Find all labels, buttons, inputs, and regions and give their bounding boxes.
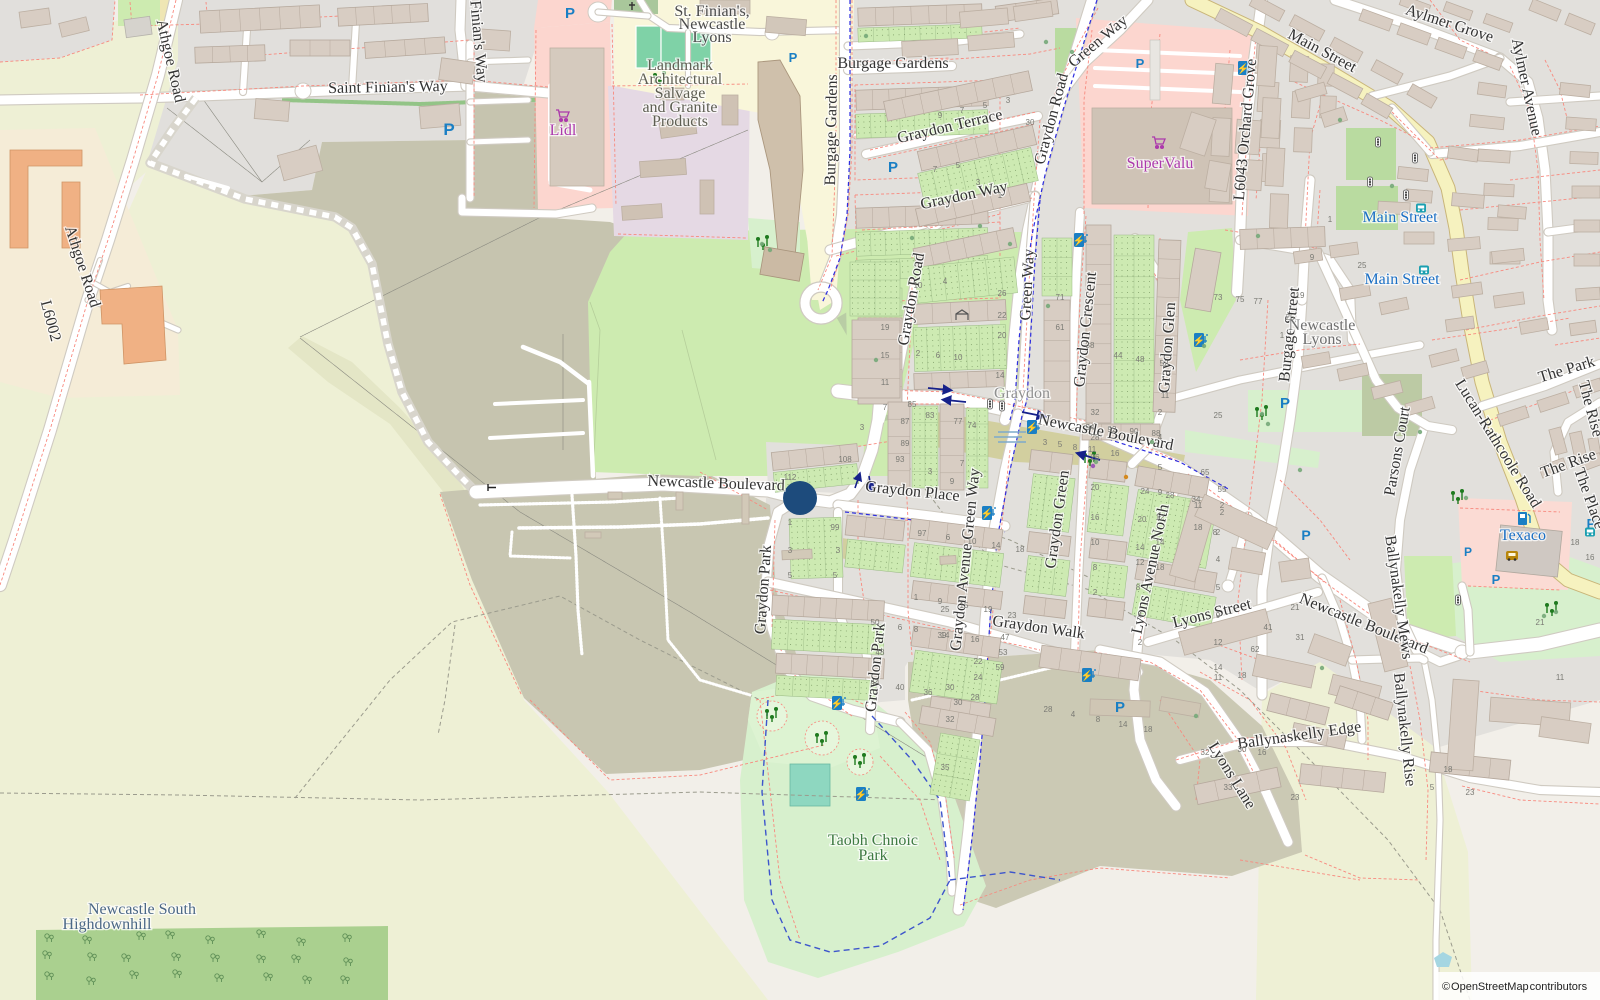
svg-text:2: 2 bbox=[916, 349, 921, 358]
svg-text:14: 14 bbox=[1136, 543, 1145, 552]
svg-text:9: 9 bbox=[1216, 611, 1221, 620]
svg-text:6: 6 bbox=[898, 623, 903, 632]
svg-text:P: P bbox=[443, 120, 454, 139]
svg-text:7: 7 bbox=[960, 106, 965, 115]
svg-text:18: 18 bbox=[1444, 765, 1453, 774]
svg-text:Highdownhill: Highdownhill bbox=[63, 916, 152, 933]
svg-text:18: 18 bbox=[1194, 523, 1203, 532]
svg-text:5: 5 bbox=[833, 571, 838, 580]
svg-text:25: 25 bbox=[1286, 313, 1295, 322]
svg-text:11: 11 bbox=[1161, 391, 1170, 400]
svg-text:52: 52 bbox=[1160, 359, 1169, 368]
svg-text:83: 83 bbox=[926, 411, 935, 420]
svg-text:28: 28 bbox=[1166, 491, 1175, 500]
svg-text:97: 97 bbox=[918, 529, 927, 538]
svg-text:18: 18 bbox=[1156, 563, 1165, 572]
svg-text:6: 6 bbox=[936, 351, 941, 360]
svg-text:20: 20 bbox=[998, 331, 1007, 340]
svg-text:25: 25 bbox=[1214, 411, 1223, 420]
svg-text:36: 36 bbox=[924, 688, 933, 697]
svg-text:19: 19 bbox=[1296, 291, 1305, 300]
svg-text:35: 35 bbox=[941, 763, 950, 772]
svg-text:7: 7 bbox=[960, 459, 965, 468]
svg-text:4: 4 bbox=[1071, 710, 1076, 719]
svg-text:Graydon: Graydon bbox=[994, 385, 1050, 402]
svg-text:18: 18 bbox=[1016, 545, 1025, 554]
svg-text:15: 15 bbox=[881, 351, 890, 360]
svg-text:1: 1 bbox=[1328, 215, 1333, 224]
svg-text:10: 10 bbox=[954, 353, 963, 362]
svg-text:Texaco: Texaco bbox=[1500, 527, 1546, 544]
svg-text:Burgage Gardens: Burgage Gardens bbox=[837, 55, 948, 72]
svg-text:53: 53 bbox=[999, 648, 1008, 657]
svg-text:88: 88 bbox=[1152, 429, 1161, 438]
svg-text:25: 25 bbox=[941, 605, 950, 614]
svg-text:18: 18 bbox=[1144, 725, 1153, 734]
svg-text:112: 112 bbox=[784, 473, 797, 482]
svg-text:12: 12 bbox=[1156, 513, 1165, 522]
svg-text:14: 14 bbox=[1119, 720, 1128, 729]
svg-text:50: 50 bbox=[871, 618, 880, 627]
svg-text:71: 71 bbox=[1056, 293, 1065, 302]
svg-text:77: 77 bbox=[954, 417, 963, 426]
svg-text:87: 87 bbox=[901, 417, 910, 426]
svg-text:26: 26 bbox=[998, 289, 1007, 298]
svg-text:30: 30 bbox=[954, 698, 963, 707]
svg-text:7: 7 bbox=[883, 403, 888, 412]
svg-text:92: 92 bbox=[1108, 425, 1117, 434]
svg-text:94: 94 bbox=[1086, 423, 1095, 432]
svg-text:3: 3 bbox=[1006, 96, 1011, 105]
svg-text:31: 31 bbox=[1296, 633, 1305, 642]
svg-text:5: 5 bbox=[1158, 463, 1163, 472]
svg-text:9: 9 bbox=[1310, 253, 1315, 262]
svg-text:4: 4 bbox=[1138, 611, 1143, 620]
svg-text:P: P bbox=[789, 50, 798, 65]
svg-text:14: 14 bbox=[996, 371, 1005, 380]
svg-text:5: 5 bbox=[1058, 440, 1063, 449]
svg-text:23: 23 bbox=[1008, 611, 1017, 620]
svg-text:25: 25 bbox=[1358, 261, 1367, 270]
svg-text:Burgage Gardens: Burgage Gardens bbox=[822, 74, 841, 186]
svg-text:5: 5 bbox=[1430, 783, 1435, 792]
svg-text:4: 4 bbox=[1216, 555, 1221, 564]
svg-text:10: 10 bbox=[914, 281, 923, 290]
svg-text:3: 3 bbox=[1043, 438, 1048, 447]
svg-text:21: 21 bbox=[1536, 618, 1545, 627]
svg-text:6: 6 bbox=[946, 533, 951, 542]
svg-text:© OpenStreetMap contributors: © OpenStreetMap contributors bbox=[1442, 981, 1588, 993]
svg-text:7: 7 bbox=[933, 165, 938, 174]
svg-text:Lidl: Lidl bbox=[550, 122, 577, 139]
svg-text:38: 38 bbox=[1086, 341, 1095, 350]
svg-text:15: 15 bbox=[960, 601, 969, 610]
svg-text:5: 5 bbox=[788, 571, 793, 580]
svg-text:2: 2 bbox=[1220, 508, 1225, 517]
svg-text:P: P bbox=[565, 5, 575, 22]
svg-text:10: 10 bbox=[968, 537, 977, 546]
svg-text:11: 11 bbox=[1194, 501, 1203, 510]
svg-text:16: 16 bbox=[971, 635, 980, 644]
svg-text:11: 11 bbox=[1556, 673, 1565, 682]
svg-text:22: 22 bbox=[998, 311, 1007, 320]
svg-text:93: 93 bbox=[896, 455, 905, 464]
svg-text:2: 2 bbox=[1138, 638, 1143, 647]
svg-text:3: 3 bbox=[860, 423, 865, 432]
svg-text:3: 3 bbox=[788, 546, 793, 555]
svg-text:3: 3 bbox=[836, 546, 841, 555]
svg-text:24: 24 bbox=[974, 673, 983, 682]
svg-text:33: 33 bbox=[1224, 783, 1233, 792]
svg-text:90: 90 bbox=[1130, 427, 1139, 436]
svg-text:16: 16 bbox=[1586, 553, 1595, 562]
svg-text:11: 11 bbox=[881, 378, 890, 387]
svg-text:Lyons: Lyons bbox=[1302, 331, 1341, 348]
svg-text:40: 40 bbox=[896, 683, 905, 692]
svg-text:1: 1 bbox=[998, 191, 1003, 200]
svg-text:61: 61 bbox=[1056, 323, 1065, 332]
svg-text:19: 19 bbox=[984, 605, 993, 614]
svg-text:30: 30 bbox=[1238, 745, 1247, 754]
svg-text:12: 12 bbox=[1136, 558, 1145, 567]
svg-text:55: 55 bbox=[1218, 485, 1227, 494]
svg-text:14: 14 bbox=[992, 541, 1001, 550]
svg-text:5: 5 bbox=[956, 161, 961, 170]
svg-text:48: 48 bbox=[876, 648, 885, 657]
svg-text:3: 3 bbox=[976, 178, 981, 187]
svg-text:32: 32 bbox=[946, 715, 955, 724]
svg-text:8: 8 bbox=[1073, 443, 1078, 452]
svg-text:12: 12 bbox=[1214, 638, 1223, 647]
svg-text:16: 16 bbox=[1258, 748, 1267, 757]
svg-text:16: 16 bbox=[1091, 513, 1100, 522]
svg-text:2: 2 bbox=[1158, 408, 1163, 417]
svg-text:74: 74 bbox=[968, 421, 977, 430]
svg-text:99: 99 bbox=[831, 523, 840, 532]
svg-text:77: 77 bbox=[1254, 297, 1263, 306]
svg-text:P: P bbox=[1464, 545, 1472, 559]
svg-text:28: 28 bbox=[1091, 433, 1100, 442]
svg-text:62: 62 bbox=[1251, 645, 1260, 654]
svg-text:41: 41 bbox=[1264, 623, 1273, 632]
svg-text:3: 3 bbox=[928, 467, 933, 476]
svg-text:28: 28 bbox=[1044, 705, 1053, 714]
svg-text:44: 44 bbox=[871, 678, 880, 687]
svg-text:28: 28 bbox=[971, 693, 980, 702]
svg-text:108: 108 bbox=[838, 455, 852, 464]
svg-text:Main Street: Main Street bbox=[1364, 271, 1440, 288]
svg-text:23: 23 bbox=[1291, 793, 1300, 802]
svg-text:73: 73 bbox=[1214, 293, 1223, 302]
svg-text:P: P bbox=[1136, 56, 1145, 71]
svg-text:4: 4 bbox=[943, 277, 948, 286]
svg-text:5: 5 bbox=[983, 101, 988, 110]
svg-text:44: 44 bbox=[1114, 351, 1123, 360]
svg-text:21: 21 bbox=[1291, 603, 1300, 612]
svg-text:22: 22 bbox=[974, 657, 983, 666]
svg-text:Park: Park bbox=[858, 847, 887, 864]
svg-text:P: P bbox=[1492, 572, 1501, 587]
svg-text:P: P bbox=[1115, 699, 1125, 716]
svg-text:8: 8 bbox=[914, 625, 919, 634]
svg-text:30: 30 bbox=[946, 683, 955, 692]
svg-text:8: 8 bbox=[1093, 563, 1098, 572]
svg-text:P: P bbox=[1301, 527, 1310, 543]
svg-text:85: 85 bbox=[908, 400, 917, 409]
svg-text:8: 8 bbox=[1136, 583, 1141, 592]
svg-text:P: P bbox=[1280, 395, 1290, 412]
svg-text:89: 89 bbox=[901, 439, 910, 448]
svg-text:2: 2 bbox=[1093, 588, 1098, 597]
svg-text:8: 8 bbox=[1213, 528, 1218, 537]
svg-text:1: 1 bbox=[788, 518, 793, 527]
svg-text:59: 59 bbox=[996, 663, 1005, 672]
svg-text:9: 9 bbox=[938, 111, 943, 120]
svg-text:14: 14 bbox=[1214, 663, 1223, 672]
svg-text:8: 8 bbox=[1096, 715, 1101, 724]
svg-text:16: 16 bbox=[1111, 449, 1120, 458]
svg-text:14: 14 bbox=[1156, 538, 1165, 547]
svg-text:5: 5 bbox=[1216, 583, 1221, 592]
svg-text:32: 32 bbox=[1091, 408, 1100, 417]
svg-text:24: 24 bbox=[1141, 487, 1150, 496]
svg-text:75: 75 bbox=[1236, 295, 1245, 304]
svg-text:23: 23 bbox=[1466, 788, 1475, 797]
svg-text:1: 1 bbox=[1280, 331, 1285, 340]
svg-text:18: 18 bbox=[1238, 671, 1247, 680]
svg-text:20: 20 bbox=[1138, 515, 1147, 524]
svg-text:Products: Products bbox=[652, 113, 708, 130]
svg-text:Main Street: Main Street bbox=[1362, 209, 1438, 226]
svg-text:9: 9 bbox=[1158, 488, 1163, 497]
svg-text:19: 19 bbox=[881, 323, 890, 332]
svg-text:32: 32 bbox=[1201, 748, 1210, 757]
svg-text:10: 10 bbox=[1091, 538, 1100, 547]
svg-text:20: 20 bbox=[1091, 483, 1100, 492]
svg-text:P: P bbox=[888, 159, 898, 176]
svg-text:Lyons: Lyons bbox=[692, 29, 731, 46]
svg-text:65: 65 bbox=[1201, 468, 1210, 477]
svg-text:48: 48 bbox=[1136, 355, 1145, 364]
svg-text:Saint Finian's Way: Saint Finian's Way bbox=[328, 78, 448, 97]
svg-text:1: 1 bbox=[914, 593, 919, 602]
svg-text:18: 18 bbox=[1571, 538, 1580, 547]
svg-text:11: 11 bbox=[1214, 673, 1223, 682]
svg-text:SuperValu: SuperValu bbox=[1127, 155, 1194, 172]
svg-text:39: 39 bbox=[938, 631, 947, 640]
svg-text:30: 30 bbox=[1026, 118, 1035, 127]
svg-text:9: 9 bbox=[950, 477, 955, 486]
svg-text:47: 47 bbox=[1001, 633, 1010, 642]
